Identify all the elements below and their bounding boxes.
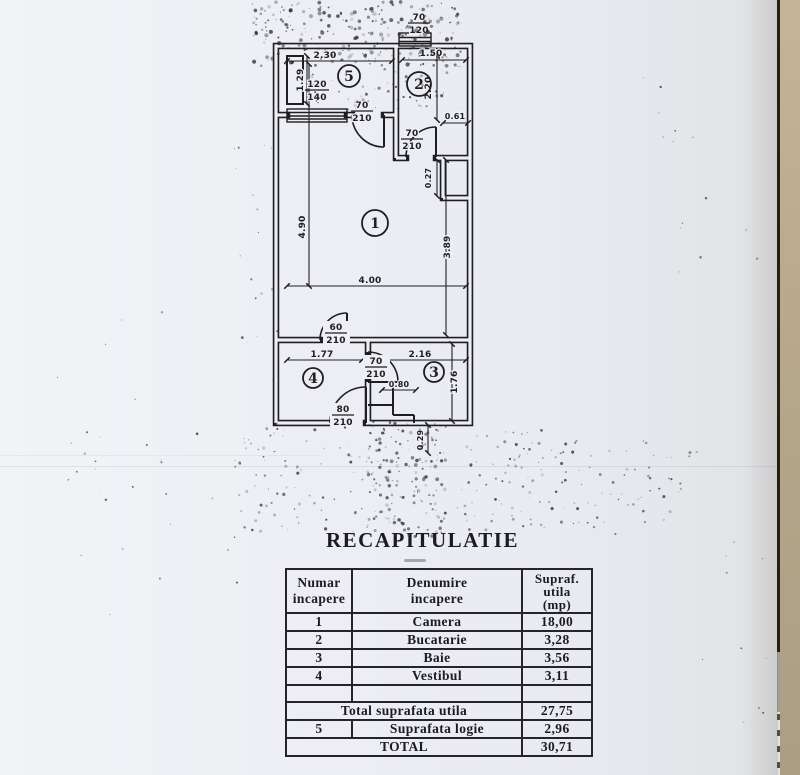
dim-niche-depth: 0.27 [424,168,433,189]
row-area: 3,56 [522,649,592,667]
bath-door-w: 70 [370,357,383,367]
hall-door-h: 210 [326,336,345,346]
kitchen-door-w: 70 [406,129,419,139]
logie-value: 2,96 [522,720,592,738]
dim-kitchen-niche: 0.61 [445,112,466,121]
dim-hall-width: 1.77 [310,350,333,360]
top-window-w: 70 [413,13,426,23]
svg-text:2: 2 [414,77,424,93]
label-entry-door: 80 210 [330,403,357,428]
logia-window-w: 120 [307,80,326,90]
ink-smudge [404,559,426,562]
logie-num: 5 [286,720,352,738]
row-num: 1 [286,613,352,631]
dim-kitchen-height: 2.20 [424,76,434,99]
logie-row: 5 Suprafata logie 2,96 [286,720,592,738]
dim-room-left: 4.90 [298,215,308,238]
window-logia [287,109,347,122]
top-window-h: 120 [409,26,428,36]
floor-plan: 2.30 1.50 0.61 4.00 1.77 2.16 0.80 1.29 … [250,0,500,470]
row-name: Bucatarie [352,631,522,649]
room-camera: 1 [362,210,388,236]
row-name: Baie [352,649,522,667]
room-logie: 5 [338,65,360,87]
logia-door-w: 70 [356,101,369,111]
bath-door-h: 210 [366,370,385,380]
table-empty-row [286,685,592,702]
door-leaves [347,115,436,423]
svg-text:3: 3 [429,365,439,381]
photo-background-strip [780,0,800,775]
dim-room-right: 3.89 [443,235,453,258]
svg-text:5: 5 [344,69,354,85]
entry-door-h: 210 [333,418,352,428]
logia-window-h: 140 [307,93,326,103]
label-top-window: 70 120 [408,13,430,36]
logie-label: Suprafata logie [352,720,522,738]
kitchen-door-h: 210 [402,142,421,152]
total-utila-row: Total suprafata utila 27,75 [286,702,592,720]
grand-total-row: TOTAL 30,71 [286,738,592,756]
header-denumire: Denumire incapere [352,569,522,613]
logia-door-h: 210 [352,114,371,124]
dim-kitchen-width: 1.50 [419,49,442,59]
entry-door-w: 80 [337,405,350,415]
grand-total-label: TOTAL [286,738,522,756]
dim-logia-side: 1.29 [296,68,306,91]
page-edge-shadow [742,0,778,775]
table-row: 1 Camera 18,00 [286,613,592,631]
label-hall-door: 60 210 [323,321,350,346]
row-num: 2 [286,631,352,649]
dim-logia-width: 2.30 [313,51,336,61]
header-numar: Numar incapere [286,569,352,613]
total-utila-label: Total suprafata utila [286,702,522,720]
dim-bath-clear: 0.80 [389,380,410,389]
dim-bath-height: 1.76 [450,370,460,393]
svg-text:4: 4 [308,371,318,387]
table-row: 2 Bucatarie 3,28 [286,631,592,649]
row-num: 4 [286,667,352,685]
svg-text:1: 1 [370,216,380,232]
room-vestibul: 4 [303,368,323,388]
dim-exterior-offset: 0.29 [416,430,425,451]
room-baie: 3 [424,362,444,382]
bath-notch-walls [368,385,414,423]
page-title: RECAPITULATIE [275,528,570,553]
table-row: 3 Baie 3,56 [286,649,592,667]
row-area: 3,28 [522,631,592,649]
header-suprafata: Supraf. utila (mp) [522,569,592,613]
table-row: 4 Vestibul 3,11 [286,667,592,685]
dim-room-width: 4.00 [358,276,381,286]
table-header-row: Numar incapere Denumire incapere Supraf.… [286,569,592,613]
dim-bath-width: 2.16 [408,350,431,360]
row-area: 3,11 [522,667,592,685]
row-area: 18,00 [522,613,592,631]
hall-door-w: 60 [330,323,343,333]
total-utila-value: 27,75 [522,702,592,720]
recap-table: Numar incapere Denumire incapere Supraf.… [285,568,593,757]
row-name: Vestibul [352,667,522,685]
grand-total-value: 30,71 [522,738,592,756]
label-bath-door: 70 210 [363,355,390,380]
row-name: Camera [352,613,522,631]
scanned-floor-plan-page: 2.30 1.50 0.61 4.00 1.77 2.16 0.80 1.29 … [0,0,800,775]
row-num: 3 [286,649,352,667]
